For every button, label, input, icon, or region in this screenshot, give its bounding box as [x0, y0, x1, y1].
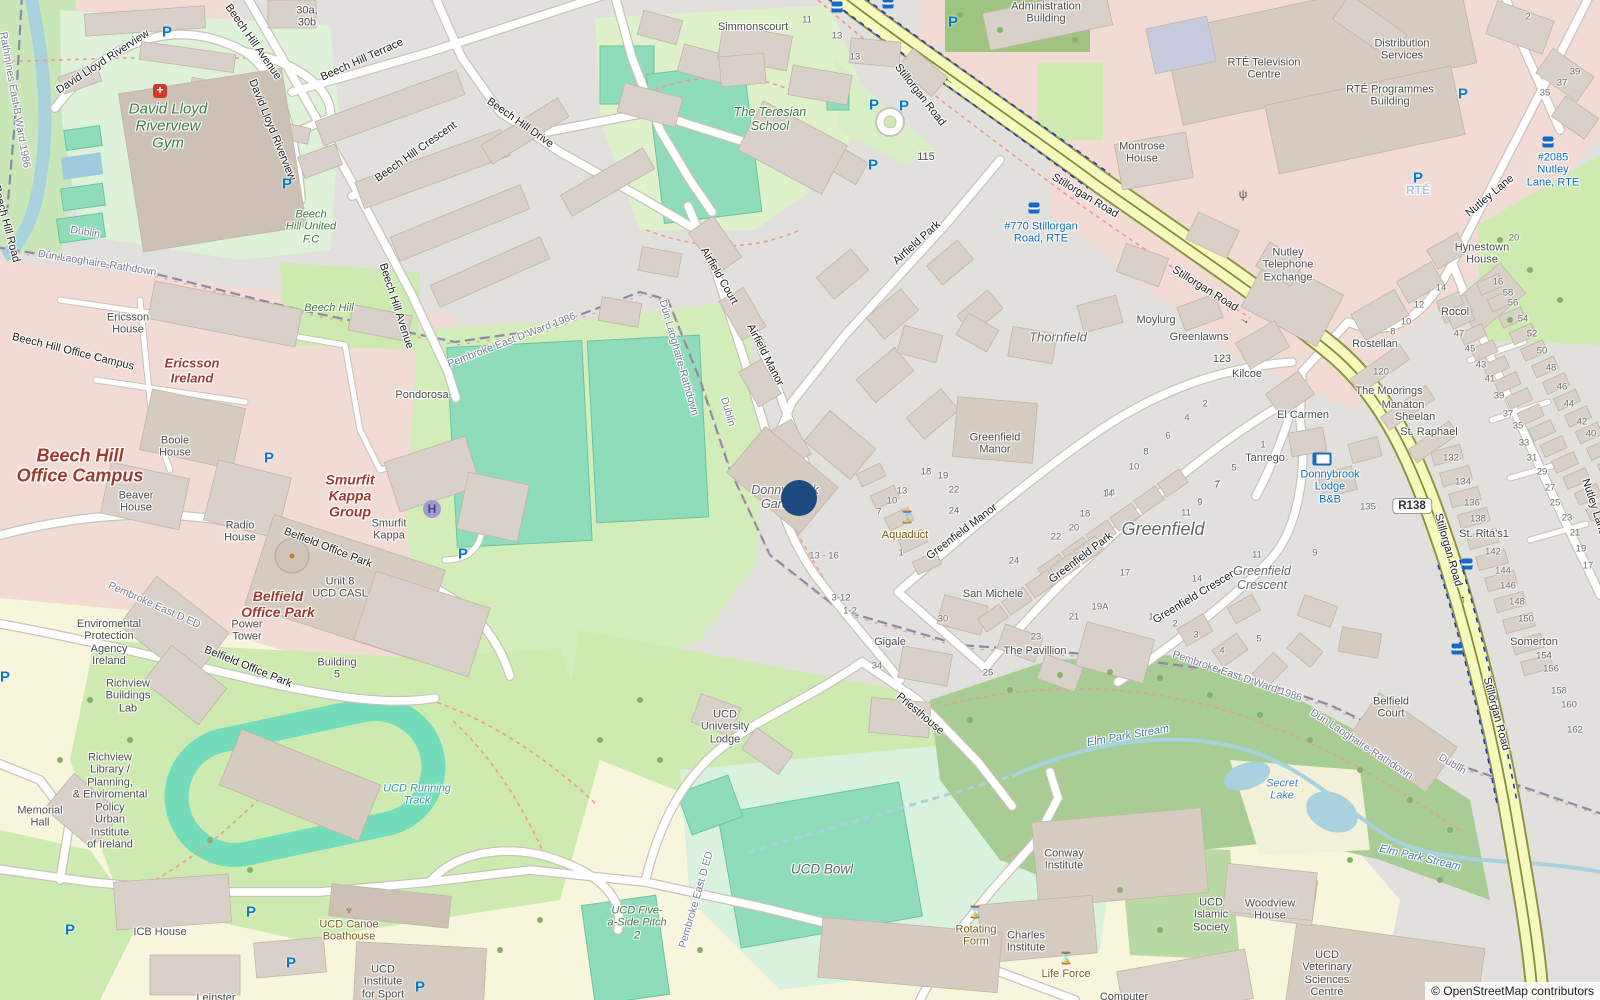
house-number: 21	[1069, 612, 1080, 623]
house-number: 10	[887, 496, 898, 507]
parking-icon[interactable]: P	[415, 979, 425, 996]
place-label: RTÉ ProgrammesBuilding	[1346, 84, 1434, 109]
parking-icon[interactable]: P	[868, 157, 878, 174]
place-label: BelfieldCourt	[1373, 696, 1409, 721]
house-number: 5	[1231, 463, 1236, 474]
place-label: 115	[917, 151, 935, 163]
house-number: 11	[1252, 550, 1262, 561]
place-label: MemorialHall	[17, 805, 62, 830]
locality-label: GreenfieldCrescent	[1233, 564, 1291, 592]
bus-icon	[883, 0, 894, 9]
parking-icon[interactable]: P	[246, 904, 256, 921]
bus-icon	[832, 2, 843, 13]
place-label: Greenlawns	[1170, 331, 1229, 343]
house-number: 8	[1143, 447, 1148, 458]
house-number: 10	[1129, 462, 1140, 473]
place-label: Moylurg	[1136, 314, 1175, 326]
house-number: 2	[1202, 399, 1207, 410]
house-number: 39	[1494, 391, 1505, 402]
house-number: 13	[897, 486, 908, 497]
house-number: 1	[898, 548, 903, 559]
house-number: 40	[1586, 429, 1597, 440]
parking-icon[interactable]: P	[1458, 86, 1468, 103]
house-number: 135	[1360, 502, 1376, 513]
house-number: 19A	[1092, 602, 1109, 613]
house-number: 148	[1509, 597, 1525, 608]
house-number: 120	[1373, 367, 1389, 378]
place-label: SmurfitKappa	[372, 518, 407, 543]
house-number: 11	[1181, 508, 1191, 519]
place-label: ICB House	[133, 926, 186, 938]
house-number: 158	[1551, 686, 1567, 697]
locality-label: UCD Bowl	[791, 861, 853, 876]
bus-icon	[1543, 137, 1554, 148]
house-number: 10	[1401, 317, 1412, 328]
house-number: 4	[1184, 413, 1189, 424]
house-number: 134	[1455, 477, 1471, 488]
parking-icon[interactable]: P	[869, 97, 879, 114]
house-number: 2	[1172, 619, 1177, 630]
house-number: 20	[1509, 233, 1520, 244]
house-number: 56	[1508, 298, 1519, 309]
company-label: EricssonIreland	[165, 356, 220, 385]
place-label: RichviewBuildingsLab	[106, 677, 151, 714]
house-number: 30	[938, 614, 949, 625]
monument-label: RotatingForm	[956, 924, 997, 949]
place-label: Kilcoe	[1232, 368, 1262, 380]
house-number: 6	[1165, 431, 1170, 442]
place-label: Building5	[317, 657, 356, 682]
place-label: HynestownHouse	[1455, 242, 1509, 267]
monument-icon: ⌛	[1059, 951, 1074, 965]
map-canvas[interactable]: David Lloyd RiverviewDavid Lloyd Rivervi…	[0, 0, 1600, 1000]
parking-icon[interactable]: P	[264, 450, 274, 467]
bus-icon	[1029, 203, 1040, 214]
house-number: 29	[1537, 467, 1548, 478]
house-number: 4	[1219, 646, 1224, 657]
house-number: 3	[1193, 630, 1198, 641]
place-label: The Moorings	[1355, 385, 1422, 397]
place-label: Tanrego	[1245, 452, 1285, 464]
parking-icon[interactable]: P	[1413, 170, 1423, 187]
place-label: CharlesInstitute	[1007, 930, 1046, 955]
house-number: 14	[1103, 489, 1114, 500]
house-number: 14	[1192, 574, 1203, 585]
house-number: 142	[1485, 547, 1501, 558]
bus-icon	[1452, 644, 1463, 655]
place-label: Sheelan	[1395, 411, 1435, 423]
place-label: El Carmen	[1277, 409, 1329, 421]
locality-label: Greenfield	[1121, 519, 1204, 539]
place-label: AdministrationBuilding	[1011, 1, 1081, 26]
place-label: ConwayInstitute	[1044, 848, 1084, 873]
house-number: 22	[1051, 532, 1062, 543]
house-number: 21	[1570, 528, 1581, 539]
house-number: 24	[949, 506, 960, 517]
place-label: EricssonHouse	[107, 312, 149, 337]
house-number: 146	[1500, 581, 1516, 592]
house-number: 50	[1537, 346, 1548, 357]
house-number: 20	[1069, 523, 1080, 534]
place-label: NutleyTelephoneExchange	[1263, 246, 1314, 283]
house-number: 1-2	[843, 606, 857, 617]
monument-label: UCD CanoeBoathouse	[319, 919, 378, 944]
poi-ref-label: DonnybrookLodgeB&B	[1300, 468, 1359, 505]
leisure-label: Beech Hill	[304, 302, 354, 314]
house-number: 19	[938, 471, 949, 482]
water-label: SecretLake	[1266, 778, 1298, 803]
place-label: Unit 8UCD CASL	[312, 576, 368, 601]
place-label: EnviromentalProtectionAgencyIreland	[77, 618, 141, 668]
parking-icon[interactable]: P	[162, 24, 172, 41]
place-label: Pondorosa	[395, 389, 448, 401]
house-number: 35	[1540, 88, 1551, 99]
house-number: 37	[1557, 78, 1568, 89]
house-number: 34	[872, 661, 883, 672]
house-number: 37	[1503, 409, 1514, 420]
osm-attribution[interactable]: © OpenStreetMap contributors	[1425, 982, 1600, 1000]
poi-ref-label: #770 StillorganRoad, RTE	[1004, 221, 1077, 246]
house-number: 41	[1485, 374, 1496, 385]
house-number: 17	[1583, 561, 1594, 572]
place-label: St. Raphael	[1400, 426, 1457, 438]
house-number: 13	[850, 52, 861, 63]
house-number: 48	[1546, 363, 1557, 374]
place-label: Somerton	[1510, 636, 1558, 648]
place-label: RadioHouse	[224, 520, 256, 545]
house-number: 17	[1120, 568, 1131, 579]
house-number: 23	[1562, 513, 1573, 524]
house-number: 154	[1536, 651, 1552, 662]
place-label: UCDUniversityLodge	[701, 708, 749, 745]
place-label: BeaverHouse	[119, 490, 154, 515]
bus-icon	[1462, 559, 1473, 570]
place-label: St. Rita's1	[1459, 528, 1509, 540]
place-label: UCDInstitutefor Sport	[362, 963, 404, 1000]
house-number: 8	[1390, 327, 1395, 338]
house-number: 42	[1577, 417, 1588, 428]
place-label: UCDIslamicSociety	[1193, 896, 1229, 933]
parking-icon[interactable]: P	[948, 14, 958, 31]
house-number: 25	[1550, 498, 1561, 509]
monument-label: Life Force	[1042, 968, 1091, 980]
house-number: 22	[949, 485, 960, 496]
leisure-label: The TeresianSchool	[734, 105, 807, 133]
house-number: 132	[1443, 453, 1459, 464]
house-number: 160	[1561, 700, 1577, 711]
place-label: Leinster	[196, 992, 235, 1000]
house-number: 43	[1476, 360, 1487, 371]
place-label: GreenfieldManor	[970, 432, 1021, 457]
house-number: 150	[1518, 614, 1534, 625]
parking-icon[interactable]: P	[0, 669, 10, 686]
house-number: 23	[1031, 632, 1042, 643]
house-number: 44	[1564, 399, 1575, 410]
company-label: Beech HillOffice Campus	[17, 446, 144, 487]
house-number: 11	[802, 15, 812, 26]
house-number: 54	[1518, 314, 1529, 325]
place-label: 30a,30b	[296, 5, 317, 30]
house-number: 14	[1436, 283, 1447, 294]
house-number: 3-12	[831, 593, 850, 604]
locality-label: Thornfield	[1029, 331, 1087, 346]
house-number: 19	[1576, 544, 1587, 555]
house-number: 47	[1454, 329, 1465, 340]
house-number: 35	[1513, 421, 1524, 432]
place-label: DistributionServices	[1374, 38, 1429, 63]
company-label: SmurfitKappaGroup	[326, 472, 375, 519]
parking-icon[interactable]: P	[458, 546, 468, 563]
house-number: 138	[1470, 514, 1486, 525]
house-number: 162	[1567, 725, 1583, 736]
route-ref-badge: R138	[1392, 498, 1432, 514]
house-number: 136	[1464, 498, 1480, 509]
house-number: 1	[1260, 440, 1265, 451]
monument-icon: ⌛	[968, 905, 983, 919]
house-number: 46	[1557, 382, 1568, 393]
house-number: 33	[1519, 438, 1530, 449]
house-number: 52	[1527, 329, 1538, 340]
place-label: Computer	[1100, 991, 1148, 1000]
place-label: San Michele	[963, 588, 1024, 600]
helipad-icon: H	[423, 500, 441, 518]
house-number: 13	[832, 31, 843, 42]
monument-icon: ⌛	[900, 510, 915, 524]
place-label: RTÉ TelevisionCentre	[1228, 57, 1301, 82]
poi-ref-label: #2085NutleyLane, RTE	[1527, 151, 1579, 188]
place-label: Rostellan	[1352, 338, 1398, 350]
location-marker[interactable]	[781, 480, 817, 516]
place-label: Manaton	[1382, 399, 1425, 411]
house-number: 9	[1197, 498, 1202, 509]
place-label: Simmonscourt	[718, 21, 788, 33]
house-number: 7	[876, 507, 881, 518]
house-number: 24	[1009, 556, 1020, 567]
house-number: 12	[1414, 300, 1425, 311]
house-number: 2	[1525, 12, 1530, 23]
place-label: UCDVeterinarySciencesCentre	[1302, 949, 1352, 999]
house-number: 18	[921, 467, 932, 478]
firstaid-icon: +	[153, 84, 167, 98]
parking-icon[interactable]: P	[899, 98, 909, 115]
house-number: 144	[1495, 566, 1511, 577]
leisure-label: BeechHill UnitedF.C	[286, 208, 336, 245]
house-number: 45	[1465, 344, 1476, 355]
house-number: 27	[1545, 483, 1556, 494]
place-label: WoodviewHouse	[1245, 898, 1296, 923]
house-number: 9	[1312, 548, 1317, 559]
leisure-label: UCD Five-a-Side Pitch2	[607, 904, 666, 941]
house-number: 7	[1214, 480, 1219, 491]
place-label: Gigale	[874, 636, 906, 648]
house-number: 13 - 16	[809, 551, 839, 562]
place-label: MontroseHouse	[1119, 141, 1165, 166]
parking-icon[interactable]: P	[65, 922, 75, 939]
house-number: 5	[1256, 634, 1261, 645]
place-label: BooleHouse	[159, 435, 191, 460]
house-number: 16	[1493, 277, 1504, 288]
boat-icon: ♆	[344, 903, 354, 918]
parking-icon[interactable]: P	[286, 955, 296, 972]
place-label: RichviewLibrary /Planning,& Enviromental…	[73, 751, 148, 850]
house-number: 25	[983, 668, 994, 679]
track-label: UCD RunningTrack	[383, 783, 451, 808]
house-number: 31	[1527, 453, 1538, 464]
antenna-icon: ψ	[1239, 187, 1248, 201]
house-number: 18	[1080, 509, 1091, 520]
leisure-label: David LloydRiverviewGym	[129, 102, 207, 153]
place-label: Rocol	[1441, 306, 1469, 318]
house-number: 39	[1570, 67, 1581, 78]
bed-icon	[1313, 453, 1332, 466]
parking-icon[interactable]: P	[282, 176, 292, 193]
monument-label: Aquaduct	[882, 529, 928, 541]
company-label: BelfieldOffice Park	[241, 589, 315, 621]
place-label: PowerTower	[231, 619, 262, 644]
place-label: 123	[1213, 353, 1231, 365]
house-number: 156	[1543, 664, 1559, 675]
place-label: The Pavillion	[1004, 645, 1067, 657]
